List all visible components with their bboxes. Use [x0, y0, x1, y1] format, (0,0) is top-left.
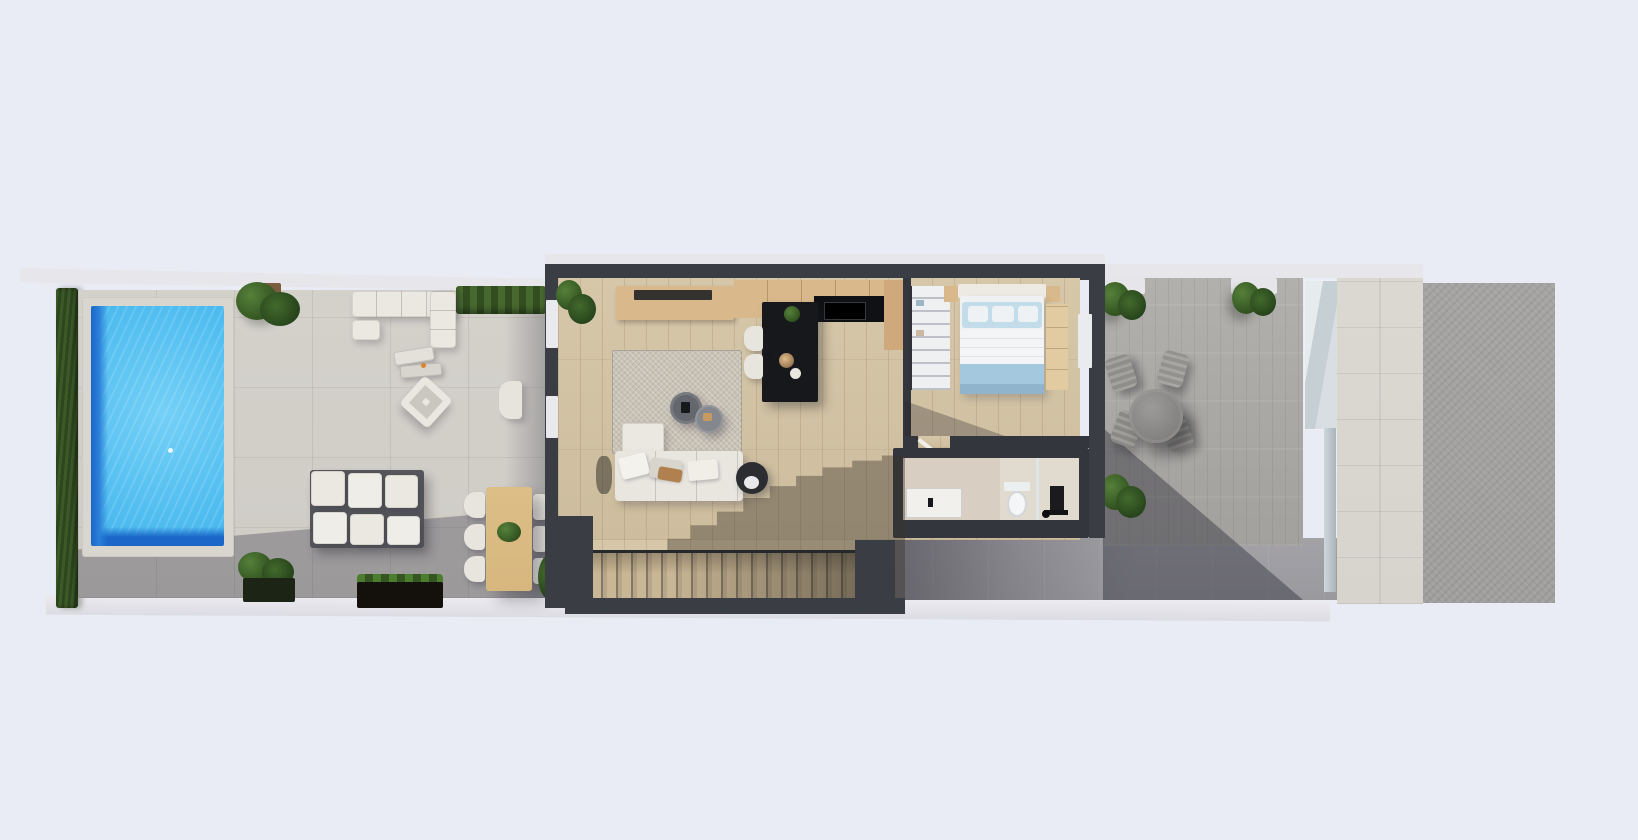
patio-door [546, 300, 558, 348]
lounge-set-cushion [387, 516, 420, 545]
wall-chair [499, 381, 522, 419]
terrace-door [1078, 314, 1092, 368]
bed-pillow [968, 306, 988, 322]
gravel-strip [1423, 283, 1555, 603]
tv-screen [634, 290, 712, 300]
bistro-table [1129, 389, 1183, 443]
lounge-set-cushion [311, 471, 345, 506]
bar-stool [744, 326, 763, 351]
bed-duvet [960, 330, 1044, 366]
bed-foot-band [960, 384, 1044, 394]
table-centerpiece-plant [497, 522, 521, 542]
nightstand [1046, 286, 1060, 302]
dining-chair [464, 492, 485, 518]
terrace-plant [1250, 288, 1276, 316]
planter-box [243, 578, 295, 602]
glass-fence-strip [1324, 428, 1336, 592]
terrace-plant [1116, 486, 1146, 518]
bed-pillow [992, 306, 1014, 322]
vanity-faucet [928, 498, 933, 507]
bar-stool [744, 354, 763, 379]
pool-sparkle [168, 448, 173, 453]
coffee-table-tray [681, 402, 690, 413]
cooktop [824, 302, 866, 320]
lounge-set-cushion [385, 475, 418, 508]
toilet-bowl [1007, 491, 1027, 517]
swimming-pool-water [91, 306, 224, 546]
bed-throw [960, 364, 1044, 384]
door-shadow-object [596, 456, 612, 494]
sofa-pillow [687, 459, 719, 482]
outdoor-corner-sofa [430, 291, 456, 348]
island-plant [784, 306, 800, 322]
indoor-plant [568, 294, 596, 324]
dining-chair [464, 556, 485, 582]
wall-planter [456, 286, 546, 314]
scene-aerial-floor-plan [0, 0, 1638, 840]
island-plate [790, 368, 801, 379]
coffee-table-item [703, 413, 712, 421]
privacy-hedge [56, 288, 78, 608]
toilet-tank [1004, 482, 1030, 491]
nightstand [944, 286, 958, 302]
house-east-wall [1089, 264, 1105, 538]
dining-chair [464, 524, 485, 550]
house-south-wall [565, 598, 905, 614]
staircase [592, 550, 855, 605]
vanity-sink [906, 488, 962, 518]
shower-glass [1036, 458, 1039, 520]
glass-balustrade [1304, 280, 1340, 430]
house-south-wall-block [855, 540, 895, 600]
wardrobe-clothes [916, 300, 924, 306]
stone-walkway [1337, 276, 1423, 604]
terrace-plant [1118, 290, 1146, 320]
wardrobe-clothes [916, 330, 924, 336]
house-southwest-corner [545, 516, 593, 608]
bedroom-bench [1046, 304, 1068, 390]
lounger-cushion-dot [421, 363, 426, 368]
island-bowl [779, 353, 794, 368]
patio-door [546, 396, 558, 438]
terrace-north-coping [1103, 264, 1423, 278]
side-table-plate [744, 476, 759, 489]
sofa-ottoman [352, 320, 380, 340]
lounge-set-cushion [348, 473, 382, 508]
shower-head [1042, 510, 1050, 518]
bed-pillow [1018, 306, 1038, 322]
potted-plant [260, 292, 300, 326]
planter-box [357, 582, 443, 608]
lounge-set-cushion [350, 514, 384, 545]
lounge-set-cushion [313, 512, 347, 544]
